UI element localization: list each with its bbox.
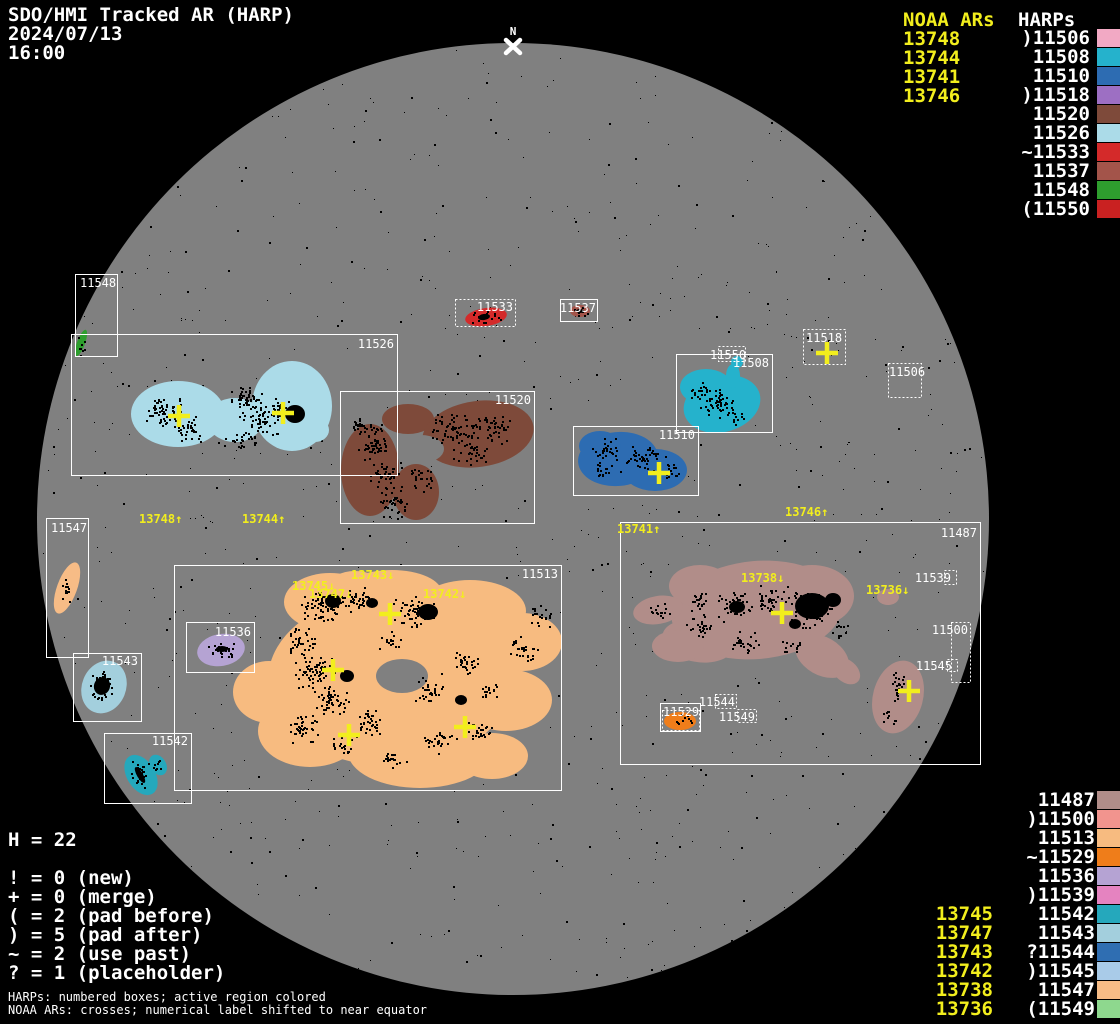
- harp-box-label: 11526: [358, 337, 394, 351]
- region-hole: [376, 659, 428, 693]
- legend-swatch: [1097, 981, 1120, 999]
- stats-line: ? = 1 (placeholder): [8, 962, 225, 984]
- legend-harp-id: (11550: [1021, 198, 1090, 220]
- legend-swatch: [1097, 29, 1120, 47]
- noaa-ar-label: 13742↓: [423, 587, 466, 601]
- legend-noaa-ar: 13736: [936, 998, 993, 1020]
- legend-harp-id: (11549: [1026, 998, 1095, 1020]
- noaa-ar-label: 13746↑: [785, 505, 828, 519]
- sunspot: [366, 598, 378, 608]
- harp-box-label: 11487: [941, 526, 977, 540]
- legend-swatch: [1097, 67, 1120, 85]
- footnote-harps: HARPs: numbered boxes; active region col…: [8, 990, 326, 1004]
- north-marker-label: N: [510, 25, 517, 38]
- legend-swatch: [1097, 829, 1120, 847]
- noaa-ar-label: 13744↑: [242, 512, 285, 526]
- sunspot: [789, 619, 801, 629]
- noaa-ar-label: 13743↓: [351, 568, 394, 582]
- harp-box-label: 11529: [663, 705, 699, 719]
- legend-noaa-ar: 13746: [903, 85, 960, 107]
- harp-box-11549: 11549: [719, 710, 757, 725]
- noaa-ar-label: 13748↑: [139, 512, 182, 526]
- harp-box-label: 11520: [495, 393, 531, 407]
- harp-box-label: 11537: [560, 301, 596, 315]
- legend-swatch: [1097, 105, 1120, 123]
- legend-swatch: [1097, 924, 1120, 942]
- time-label: 16:00: [8, 42, 65, 64]
- legend-swatch: [1097, 1000, 1120, 1018]
- harp-box-label: 11513: [522, 567, 558, 581]
- legend-swatch: [1097, 124, 1120, 142]
- legend-swatch: [1097, 48, 1120, 66]
- legend-swatch: [1097, 943, 1120, 961]
- legend-swatch: [1097, 791, 1120, 809]
- sunspot: [825, 593, 841, 607]
- noaa-ar-label: 13741↑: [617, 522, 660, 536]
- noaa-ar-label: 13738↓: [741, 571, 784, 585]
- legend-swatch: [1097, 905, 1120, 923]
- harp-box-label: 11539: [915, 571, 951, 585]
- legend-swatch: [1097, 86, 1120, 104]
- harp-box-11544: 11544: [699, 695, 737, 710]
- footnote-noaa: NOAA ARs: crosses; numerical label shift…: [8, 1003, 427, 1017]
- harp-box-label: 11545: [916, 659, 952, 673]
- legend-swatch: [1097, 962, 1120, 980]
- harp-box-label: 11500: [932, 623, 968, 637]
- harp-box-label: 11508: [733, 356, 769, 370]
- harp-box-label: 11533: [477, 300, 513, 314]
- legend-swatch: [1097, 143, 1120, 161]
- harp-count: H = 22: [8, 829, 77, 851]
- harp-box-label: 11510: [659, 428, 695, 442]
- legend-swatch: [1097, 886, 1120, 904]
- legend-swatch: [1097, 162, 1120, 180]
- harp-box-label: 11506: [889, 365, 925, 379]
- legend-swatch: [1097, 848, 1120, 866]
- legend-swatch: [1097, 867, 1120, 885]
- legend-swatch: [1097, 810, 1120, 828]
- legend-swatch: [1097, 181, 1120, 199]
- harp-box-label: 11542: [152, 734, 188, 748]
- noaa-ar-label: 13736↓: [866, 583, 909, 597]
- harp-box-label: 11518: [806, 331, 842, 345]
- sunspot: [455, 695, 467, 705]
- solar-disk-plot: 1154811526115201153311537115181150611550…: [0, 0, 1120, 1024]
- harp-box-label: 11536: [215, 625, 251, 639]
- harp-box-label: 11543: [102, 654, 138, 668]
- harp-box-11545: 11545: [916, 659, 958, 673]
- legend-swatch: [1097, 200, 1120, 218]
- harp-box-label: 11549: [719, 710, 755, 724]
- harp-box-label: 11544: [699, 695, 735, 709]
- harp-tracker-screen: 1154811526115201153311537115181150611550…: [0, 0, 1120, 1024]
- harp-box-11539: 11539: [915, 571, 957, 586]
- harp-box-label: 11547: [51, 521, 87, 535]
- harp-box-label: 11548: [80, 276, 116, 290]
- noaa-ar-label: 13747↓: [309, 587, 352, 601]
